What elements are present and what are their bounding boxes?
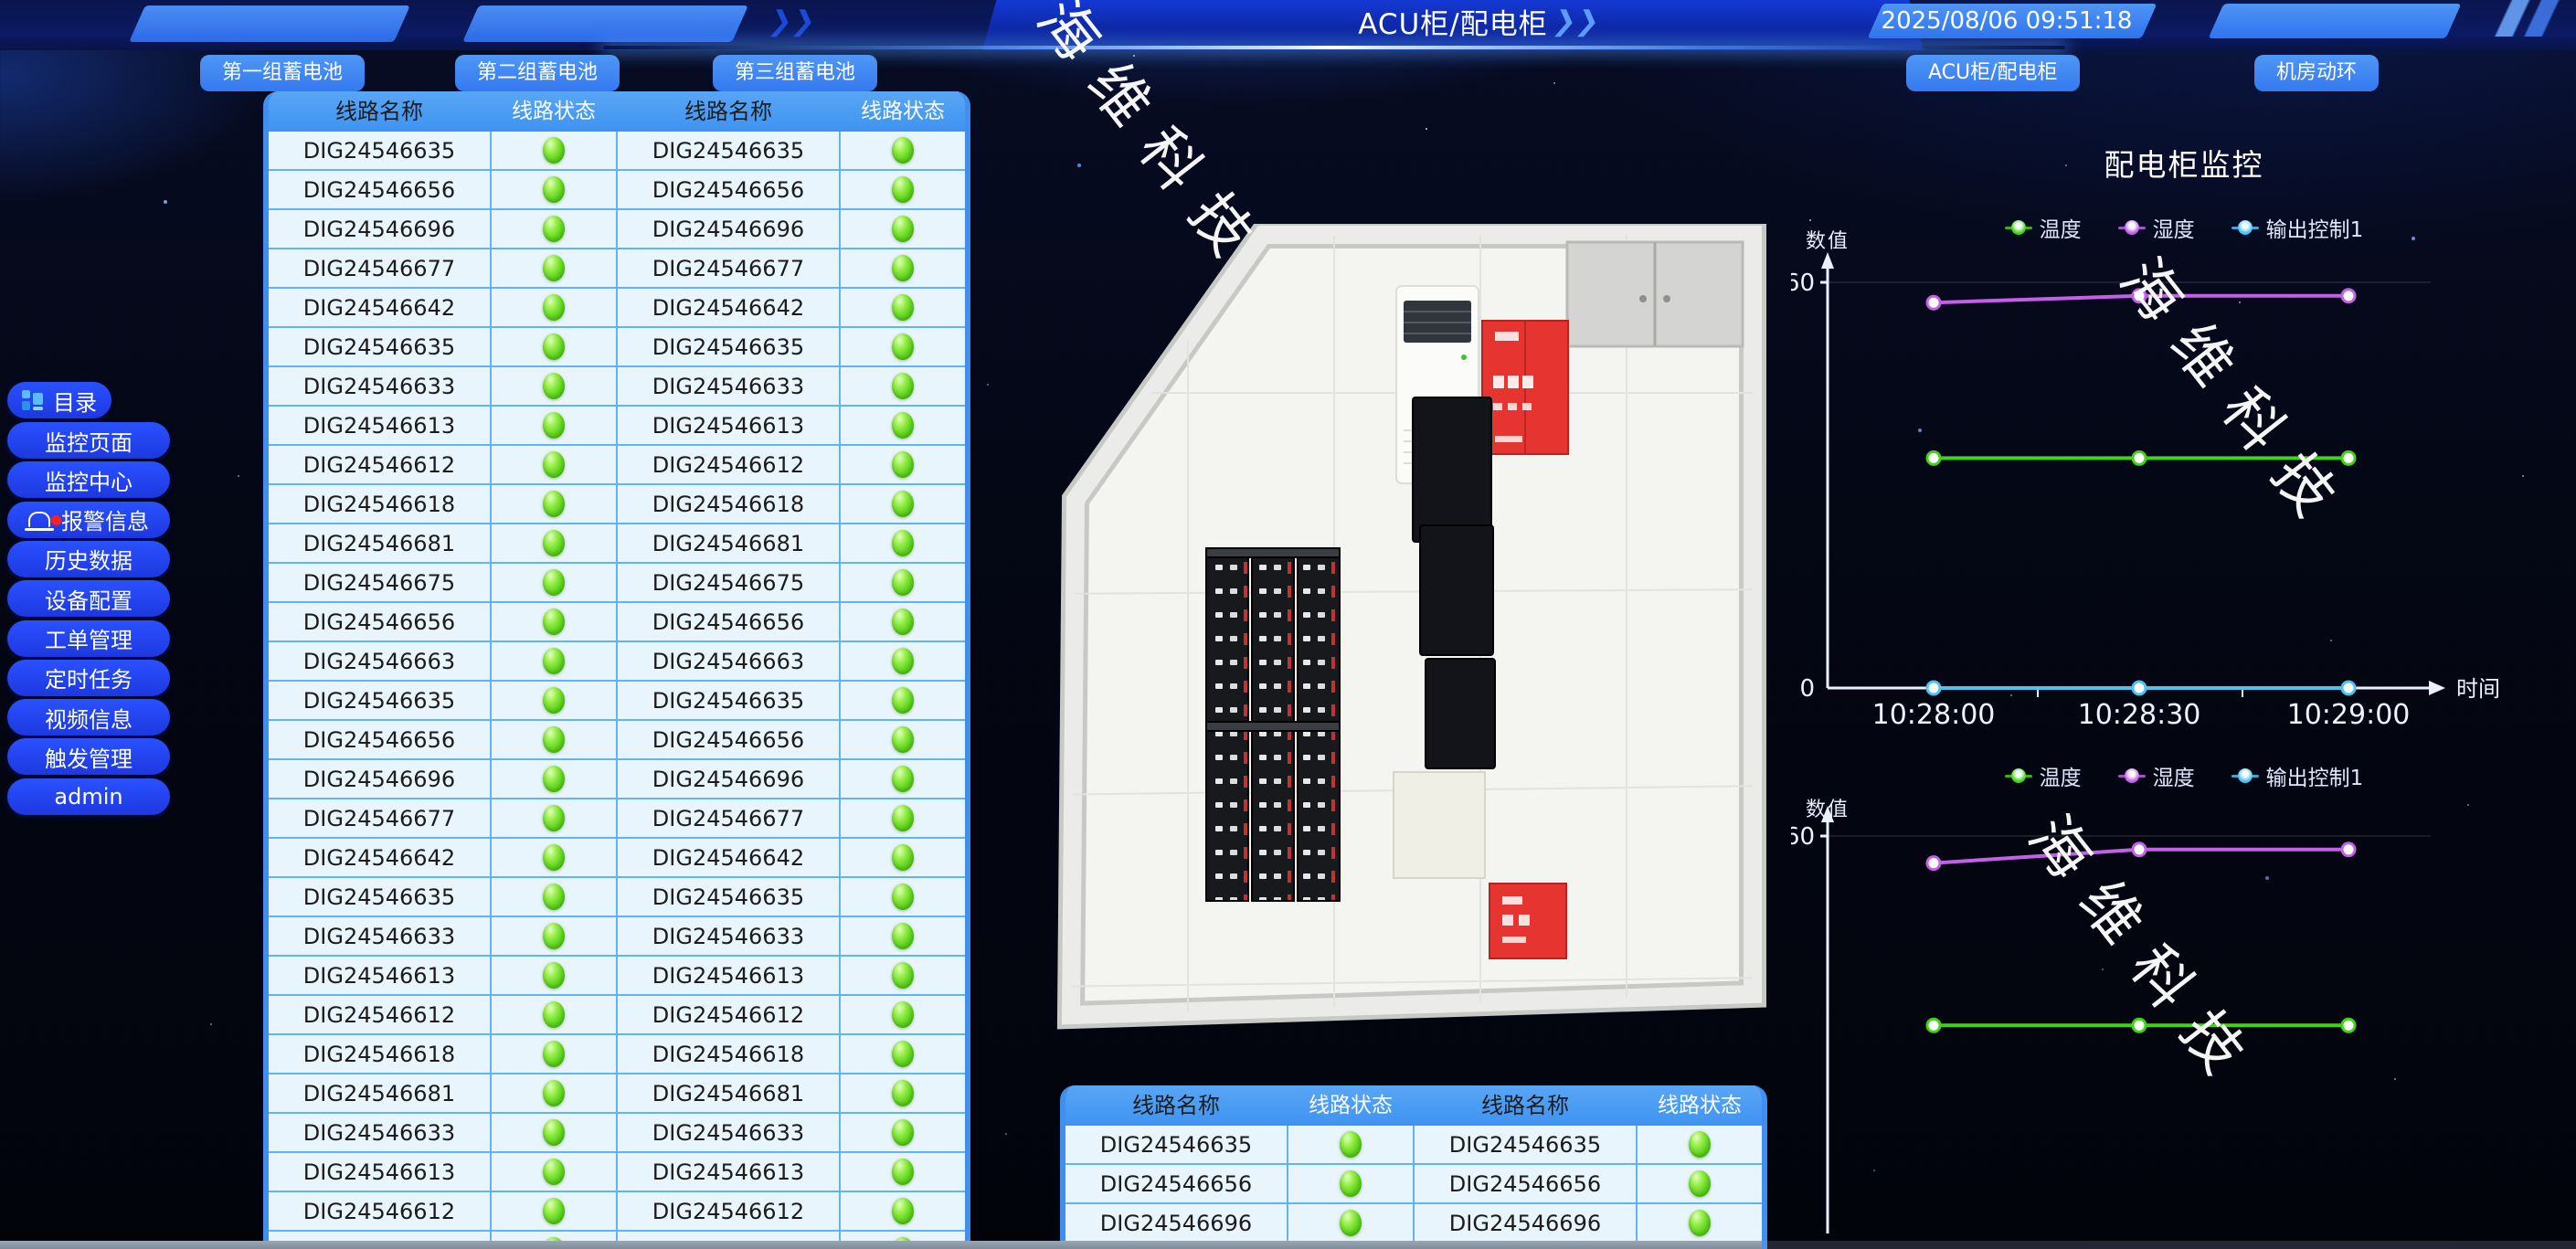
circuit-name-cell: DIG24546635 xyxy=(269,682,492,719)
header-decor-corner xyxy=(2475,0,2576,37)
circuit-name-cell: DIG24546677 xyxy=(618,249,841,287)
table-row: DIG24546681DIG24546681 xyxy=(269,524,965,564)
status-ok-indicator xyxy=(1340,1131,1362,1158)
sidebar-item-label: 监控中心 xyxy=(45,464,133,496)
circuit-status-cell xyxy=(841,446,965,483)
header-decor-left-1 xyxy=(129,5,410,42)
circuit-status-cell xyxy=(841,407,965,444)
status-ok-indicator xyxy=(543,844,565,871)
circuit-status-cell xyxy=(492,642,618,680)
circuit-status-cell xyxy=(841,249,965,287)
svg-text:0: 0 xyxy=(1799,675,1815,703)
circuit-name-cell: DIG24546696 xyxy=(618,760,841,798)
status-ok-indicator xyxy=(892,1198,914,1224)
status-ok-indicator xyxy=(892,530,914,556)
status-ok-indicator xyxy=(892,726,914,753)
status-ok-indicator xyxy=(892,373,914,399)
table-row: DIG24546618DIG24546618 xyxy=(269,485,965,524)
circuit-status-cell xyxy=(492,760,618,798)
circuit-status-cell xyxy=(492,524,618,562)
battery-group-button-2[interactable]: 第二组蓄电池 xyxy=(455,55,620,91)
circuit-status-cell xyxy=(841,996,965,1033)
circuit-status-cell xyxy=(492,289,618,326)
circuit-status-cell xyxy=(841,839,965,876)
sidebar-item-label: 报警信息 xyxy=(61,503,149,535)
circuit-name-cell: DIG24546612 xyxy=(618,996,841,1033)
circuit-name-cell: DIG24546642 xyxy=(269,289,492,326)
status-ok-indicator xyxy=(892,923,914,949)
status-ok-indicator xyxy=(892,216,914,242)
sidebar-item-label: admin xyxy=(54,784,122,810)
circuit-status-cell xyxy=(841,1114,965,1151)
sidebar-item-label: 监控页面 xyxy=(45,425,133,457)
table-row: DIG24546656DIG24546656 xyxy=(269,603,965,642)
status-ok-indicator xyxy=(543,805,565,831)
circuit-status-cell xyxy=(841,524,965,562)
battery-group-button-3[interactable]: 第三组蓄电池 xyxy=(713,55,877,91)
circuit-name-cell: DIG24546612 xyxy=(618,1192,841,1230)
circuit-status-cell xyxy=(492,1074,618,1112)
circuit-name-cell: DIG24546613 xyxy=(618,957,841,994)
circuit-status-cell xyxy=(492,564,618,601)
status-ok-indicator xyxy=(892,491,914,517)
circuit-name-cell: DIG24546656 xyxy=(618,721,841,758)
room-fire-cabinet-bottom xyxy=(1489,884,1566,958)
circuit-name-cell: DIG24546633 xyxy=(269,917,492,955)
table-row: DIG24546696DIG24546696 xyxy=(269,210,965,249)
status-ok-indicator xyxy=(543,884,565,910)
table-row: DIG24546633DIG24546633 xyxy=(269,917,965,957)
circuit-name-cell: DIG24546696 xyxy=(269,210,492,248)
header-decor-left-2 xyxy=(462,5,748,42)
table-header-cell: 线路名称 xyxy=(1415,1085,1638,1126)
status-ok-indicator xyxy=(892,1080,914,1106)
table-row: DIG24546635DIG24546635 xyxy=(269,682,965,721)
room-battery-racks xyxy=(1206,548,1340,901)
status-ok-indicator xyxy=(543,962,565,989)
table-row: DIG24546613DIG24546613 xyxy=(269,957,965,996)
svg-text:时间: 时间 xyxy=(2456,676,2500,702)
circuit-status-cell xyxy=(492,1035,618,1073)
table-row: DIG24546677DIG24546677 xyxy=(269,249,965,289)
circuit-status-cell xyxy=(492,249,618,287)
circuit-name-cell: DIG24546612 xyxy=(618,446,841,483)
circuit-name-cell: DIG24546633 xyxy=(618,1114,841,1151)
circuit-status-cell xyxy=(841,878,965,916)
circuit-name-cell: DIG24546663 xyxy=(269,642,492,680)
circuit-status-cell xyxy=(492,132,618,169)
status-ok-indicator xyxy=(892,176,914,203)
circuit-name-cell: DIG24546633 xyxy=(269,367,492,405)
status-ok-indicator xyxy=(892,412,914,439)
table-row: DIG24546656DIG24546656 xyxy=(269,721,965,760)
table-header-cell: 线路状态 xyxy=(841,91,965,132)
circuit-name-cell: DIG24546633 xyxy=(618,367,841,405)
status-ok-indicator xyxy=(543,1080,565,1106)
table-row: DIG24546633DIG24546633 xyxy=(269,367,965,407)
view-switch-button-1[interactable]: ACU柜/配电柜 xyxy=(1906,55,2080,91)
circuit-status-cell xyxy=(841,210,965,248)
table-row: DIG24546635DIG24546635 xyxy=(1065,1126,1762,1165)
table-header-cell: 线路名称 xyxy=(618,91,841,132)
circuit-name-cell: DIG24546696 xyxy=(1065,1204,1288,1242)
chevron-decor-icon: ❯❯ xyxy=(766,5,819,37)
status-ok-indicator xyxy=(543,648,565,674)
circuit-status-cell xyxy=(841,917,965,955)
circuit-name-cell: DIG24546681 xyxy=(269,524,492,562)
svg-text:10:29:00: 10:29:00 xyxy=(2287,699,2411,731)
status-ok-indicator xyxy=(543,530,565,556)
alarm-badge xyxy=(51,515,61,525)
circuit-status-cell xyxy=(1288,1204,1415,1242)
battery-group-button-1[interactable]: 第一组蓄电池 xyxy=(200,55,365,91)
circuit-status-cell xyxy=(492,407,618,444)
circuit-status-cell xyxy=(492,917,618,955)
circuit-name-cell: DIG24546635 xyxy=(269,132,492,169)
circuit-status-cell xyxy=(841,1074,965,1112)
status-ok-indicator xyxy=(543,333,565,360)
circuit-status-cell xyxy=(841,682,965,719)
circuit-status-cell xyxy=(492,721,618,758)
circuit-name-cell: DIG24546696 xyxy=(269,760,492,798)
table-row: DIG24546612DIG24546612 xyxy=(269,996,965,1035)
status-ok-indicator xyxy=(543,1119,565,1146)
circuit-name-cell: DIG24546675 xyxy=(618,564,841,601)
circuit-name-cell: DIG24546642 xyxy=(269,839,492,876)
table-row: DIG24546642DIG24546642 xyxy=(269,289,965,328)
circuit-status-cell xyxy=(492,799,618,837)
status-ok-indicator xyxy=(892,687,914,714)
circuit-name-cell: DIG24546656 xyxy=(1415,1165,1638,1202)
horizontal-scrollbar-track xyxy=(1762,1241,2576,1249)
status-ok-indicator xyxy=(543,1041,565,1067)
horizontal-scrollbar[interactable] xyxy=(0,1241,1762,1249)
circuit-status-cell xyxy=(841,721,965,758)
sidebar-item-9[interactable]: 触发管理 xyxy=(7,738,170,775)
room-white-cabinet xyxy=(1394,772,1485,878)
status-ok-indicator xyxy=(892,962,914,989)
sidebar-item-label: 视频信息 xyxy=(45,702,133,734)
status-ok-indicator xyxy=(1340,1210,1362,1236)
status-ok-indicator xyxy=(892,648,914,674)
circuit-status-cell xyxy=(492,328,618,365)
circuit-name-cell: DIG24546633 xyxy=(618,917,841,955)
circuit-status-cell xyxy=(841,1153,965,1191)
circuit-status-cell xyxy=(841,1035,965,1073)
table-header-cell: 线路名称 xyxy=(269,91,492,132)
status-ok-indicator xyxy=(543,373,565,399)
circuit-name-cell: DIG24546656 xyxy=(618,171,841,208)
circuit-name-cell: DIG24546612 xyxy=(269,1192,492,1230)
circuit-name-cell: DIG24546681 xyxy=(618,1074,841,1112)
circuit-status-cell xyxy=(492,210,618,248)
status-ok-indicator xyxy=(543,569,565,596)
table-row: DIG24546696DIG24546696 xyxy=(1065,1204,1762,1244)
circuit-status-table-main: 线路名称线路状态线路名称线路状态DIG24546635DIG24546635DI… xyxy=(263,91,970,1249)
table-row: DIG24546663DIG24546663 xyxy=(269,642,965,682)
circuit-status-cell xyxy=(841,132,965,169)
circuit-status-cell xyxy=(492,485,618,523)
status-ok-indicator xyxy=(892,255,914,281)
table-header-row: 线路名称线路状态线路名称线路状态 xyxy=(269,91,965,132)
circuit-name-cell: DIG24546677 xyxy=(618,799,841,837)
room-fire-cabinet-top xyxy=(1482,321,1568,454)
table-header-cell: 线路状态 xyxy=(1638,1085,1762,1126)
circuit-status-cell xyxy=(492,682,618,719)
circuit-name-cell: DIG24546613 xyxy=(618,407,841,444)
circuit-status-cell xyxy=(492,1153,618,1191)
status-ok-indicator xyxy=(543,412,565,439)
status-ok-indicator xyxy=(543,1159,565,1185)
header-datetime: 2025/08/06 09:51:18 xyxy=(1870,4,2144,38)
status-ok-indicator xyxy=(543,176,565,203)
chart-plot: 60010:28:0010:28:3010:29:00时间 xyxy=(1791,128,2576,738)
table-row: DIG24546613DIG24546613 xyxy=(269,1153,965,1192)
table-header-row: 线路名称线路状态线路名称线路状态 xyxy=(1065,1085,1762,1126)
status-ok-indicator xyxy=(892,884,914,910)
circuit-status-cell xyxy=(841,603,965,640)
status-ok-indicator xyxy=(543,1198,565,1224)
status-ok-indicator xyxy=(543,1001,565,1028)
circuit-name-cell: DIG24546635 xyxy=(269,328,492,365)
circuit-name-cell: DIG24546635 xyxy=(1065,1126,1288,1163)
circuit-name-cell: DIG24546635 xyxy=(269,878,492,916)
sidebar-item-2[interactable]: 监控中心 xyxy=(7,461,170,498)
table-row: DIG24546613DIG24546613 xyxy=(269,407,965,446)
circuit-status-cell xyxy=(1638,1165,1762,1202)
circuit-name-cell: DIG24546656 xyxy=(269,721,492,758)
circuit-status-cell xyxy=(492,603,618,640)
circuit-status-cell xyxy=(1638,1204,1762,1242)
table-row: DIG24546642DIG24546642 xyxy=(269,839,965,878)
sidebar-item-1[interactable]: 监控页面 xyxy=(7,422,170,459)
circuit-status-cell xyxy=(1288,1126,1415,1163)
sidebar-item-label: 目录 xyxy=(53,385,97,417)
table-row: DIG24546618DIG24546618 xyxy=(269,1035,965,1074)
status-ok-indicator xyxy=(543,609,565,635)
room-door xyxy=(1567,242,1743,346)
circuit-name-cell: DIG24546656 xyxy=(269,603,492,640)
circuit-name-cell: DIG24546681 xyxy=(269,1074,492,1112)
sidebar-item-label: 触发管理 xyxy=(45,741,133,773)
circuit-status-cell xyxy=(841,642,965,680)
status-ok-indicator xyxy=(543,137,565,164)
circuit-name-cell: DIG24546613 xyxy=(269,1153,492,1191)
status-ok-indicator xyxy=(892,333,914,360)
table-row: DIG24546612DIG24546612 xyxy=(269,446,965,485)
circuit-name-cell: DIG24546613 xyxy=(269,957,492,994)
status-ok-indicator xyxy=(892,1041,914,1067)
circuit-status-cell xyxy=(841,485,965,523)
table-row: DIG24546635DIG24546635 xyxy=(269,132,965,171)
status-ok-indicator xyxy=(543,451,565,478)
circuit-name-cell: DIG24546656 xyxy=(618,603,841,640)
sidebar-item-4[interactable]: 历史数据 xyxy=(7,541,170,577)
circuit-status-cell xyxy=(841,289,965,326)
circuit-name-cell: DIG24546635 xyxy=(618,878,841,916)
sidebar-item-3[interactable]: 报警信息 xyxy=(7,502,170,538)
circuit-status-cell xyxy=(492,996,618,1033)
circuit-name-cell: DIG24546696 xyxy=(618,210,841,248)
circuit-status-cell xyxy=(492,957,618,994)
circuit-name-cell: DIG24546633 xyxy=(269,1114,492,1151)
circuit-name-cell: DIG24546642 xyxy=(618,289,841,326)
status-ok-indicator xyxy=(543,294,565,321)
circuit-name-cell: DIG24546677 xyxy=(269,249,492,287)
sidebar-item-0[interactable]: 目录 xyxy=(7,382,111,418)
sidebar-item-label: 历史数据 xyxy=(45,543,133,575)
table-row: DIG24546681DIG24546681 xyxy=(269,1074,965,1114)
circuit-status-cell xyxy=(841,328,965,365)
status-ok-indicator xyxy=(1689,1210,1711,1236)
sidebar-item-label: 设备配置 xyxy=(45,583,133,615)
status-ok-indicator xyxy=(543,923,565,949)
circuit-status-cell xyxy=(841,367,965,405)
table-row: DIG24546656DIG24546656 xyxy=(269,171,965,210)
table-header-cell: 线路名称 xyxy=(1065,1085,1288,1126)
svg-text:10:28:30: 10:28:30 xyxy=(2078,699,2201,731)
status-ok-indicator xyxy=(892,1119,914,1146)
circuit-name-cell: DIG24546618 xyxy=(618,485,841,523)
circuit-status-cell xyxy=(841,799,965,837)
circuit-status-cell xyxy=(492,446,618,483)
status-ok-indicator xyxy=(543,491,565,517)
circuit-name-cell: DIG24546612 xyxy=(269,996,492,1033)
circuit-name-cell: DIG24546677 xyxy=(269,799,492,837)
sidebar-item-label: 定时任务 xyxy=(45,662,133,693)
header-decor-right xyxy=(2209,4,2462,38)
table-row: DIG24546656DIG24546656 xyxy=(1065,1165,1762,1204)
circuit-name-cell: DIG24546613 xyxy=(269,407,492,444)
svg-text:10:28:00: 10:28:00 xyxy=(1872,699,1996,731)
circuit-status-cell xyxy=(841,760,965,798)
circuit-status-table-bottom: 线路名称线路状态线路名称线路状态DIG24546635DIG24546635DI… xyxy=(1060,1085,1767,1249)
table-header-cell: 线路状态 xyxy=(1288,1085,1415,1126)
table-row: DIG24546633DIG24546633 xyxy=(269,1114,965,1153)
table-row: DIG24546696DIG24546696 xyxy=(269,760,965,799)
sidebar-item-5[interactable]: 设备配置 xyxy=(7,580,170,617)
status-ok-indicator xyxy=(892,844,914,871)
table-row: DIG24546612DIG24546612 xyxy=(269,1192,965,1232)
menu-grid-icon xyxy=(22,389,44,411)
circuit-status-cell xyxy=(492,1192,618,1230)
status-ok-indicator xyxy=(892,1001,914,1028)
circuit-status-cell xyxy=(1638,1126,1762,1163)
chevron-decor-icon: ❯❯ xyxy=(1550,5,1603,37)
circuit-status-cell xyxy=(841,1192,965,1230)
header-glow-line xyxy=(603,46,2065,49)
circuit-name-cell: DIG24546635 xyxy=(618,682,841,719)
status-ok-indicator xyxy=(543,766,565,792)
circuit-name-cell: DIG24546675 xyxy=(269,564,492,601)
circuit-status-cell xyxy=(492,171,618,208)
circuit-status-cell xyxy=(492,839,618,876)
table-row: DIG24546675DIG24546675 xyxy=(269,564,965,603)
circuit-status-cell xyxy=(841,564,965,601)
table-header-cell: 线路状态 xyxy=(492,91,618,132)
circuit-name-cell: DIG24546635 xyxy=(618,132,841,169)
circuit-status-cell xyxy=(1288,1165,1415,1202)
room-3d-view xyxy=(1033,224,1773,1064)
circuit-status-cell xyxy=(492,1114,618,1151)
view-switch-button-2[interactable]: 机房动环 xyxy=(2254,55,2379,91)
sidebar-item-label: 工单管理 xyxy=(45,622,133,654)
status-ok-indicator xyxy=(892,805,914,831)
table-row: DIG24546635DIG24546635 xyxy=(269,878,965,917)
room-black-cabinets xyxy=(1413,397,1495,768)
status-ok-indicator xyxy=(1689,1170,1711,1197)
table-row: DIG24546677DIG24546677 xyxy=(269,799,965,839)
circuit-status-cell xyxy=(841,171,965,208)
chart-panel-top: 配电柜监控温度湿度输出控制1数值60010:28:0010:28:3010:29… xyxy=(1791,128,2576,738)
circuit-name-cell: DIG24546635 xyxy=(1415,1126,1638,1163)
circuit-name-cell: DIG24546635 xyxy=(618,328,841,365)
circuit-name-cell: DIG24546642 xyxy=(618,839,841,876)
sidebar-item-6[interactable]: 工单管理 xyxy=(7,620,170,657)
svg-text:60: 60 xyxy=(1791,270,1815,297)
sidebar-item-7[interactable]: 定时任务 xyxy=(7,660,170,696)
sidebar-item-8[interactable]: 视频信息 xyxy=(7,699,170,736)
sidebar-item-admin[interactable]: admin xyxy=(7,778,170,815)
status-ok-indicator xyxy=(892,137,914,164)
circuit-name-cell: DIG24546618 xyxy=(618,1035,841,1073)
circuit-name-cell: DIG24546656 xyxy=(1065,1165,1288,1202)
circuit-name-cell: DIG24546618 xyxy=(269,1035,492,1073)
status-ok-indicator xyxy=(892,609,914,635)
status-ok-indicator xyxy=(892,1159,914,1185)
circuit-status-cell xyxy=(841,957,965,994)
status-ok-indicator xyxy=(892,766,914,792)
circuit-status-cell xyxy=(492,367,618,405)
circuit-name-cell: DIG24546613 xyxy=(618,1153,841,1191)
circuit-name-cell: DIG24546696 xyxy=(1415,1204,1638,1242)
circuit-name-cell: DIG24546612 xyxy=(269,446,492,483)
status-ok-indicator xyxy=(1340,1170,1362,1197)
status-ok-indicator xyxy=(543,255,565,281)
status-ok-indicator xyxy=(1689,1131,1711,1158)
circuit-name-cell: DIG24546618 xyxy=(269,485,492,523)
status-ok-indicator xyxy=(892,451,914,478)
status-ok-indicator xyxy=(892,294,914,321)
status-ok-indicator xyxy=(543,687,565,714)
circuit-name-cell: DIG24546681 xyxy=(618,524,841,562)
status-ok-indicator xyxy=(892,569,914,596)
circuit-name-cell: DIG24546656 xyxy=(269,171,492,208)
alarm-bell-icon xyxy=(28,512,50,527)
status-ok-indicator xyxy=(543,216,565,242)
circuit-status-cell xyxy=(492,878,618,916)
status-ok-indicator xyxy=(543,726,565,753)
circuit-name-cell: DIG24546663 xyxy=(618,642,841,680)
table-row: DIG24546635DIG24546635 xyxy=(269,328,965,367)
svg-text:60: 60 xyxy=(1791,823,1815,851)
